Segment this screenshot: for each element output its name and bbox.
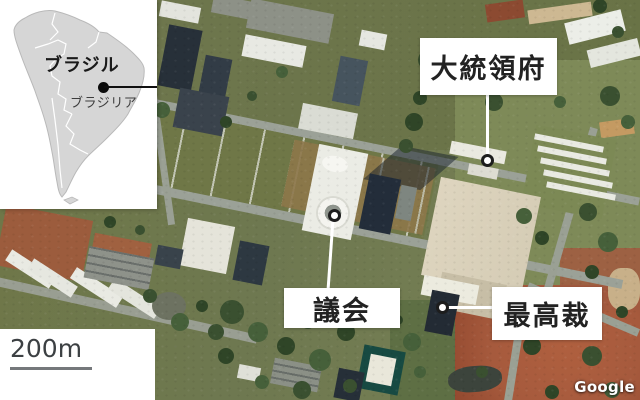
itamaraty-courtyard: [366, 354, 397, 386]
building-shape: [237, 364, 261, 382]
building-shape: [333, 368, 364, 400]
tierra-del-fuego: [64, 197, 78, 204]
building-shape: [232, 241, 269, 286]
presidential-office-marker-icon: [481, 154, 494, 167]
news-map-graphic: 大統領府 議会 最高裁 ブラジル ブラジリア 200m Google: [0, 0, 640, 400]
label-presidential-office-text: 大統領府: [431, 47, 547, 86]
supreme-court-marker-icon: [436, 301, 449, 314]
round-building: [152, 292, 186, 320]
google-attribution: Google: [574, 378, 635, 396]
parliament-marker-icon: [328, 209, 341, 222]
inset-leader-line: [104, 86, 157, 88]
leader-line-supreme-court: [447, 306, 493, 309]
building-shape: [179, 218, 235, 274]
label-parliament: 議会: [284, 288, 400, 328]
leader-line-presidential-office: [486, 95, 489, 157]
city-label: ブラジリア: [70, 92, 137, 111]
scale-bar: 200m: [0, 329, 155, 400]
label-supreme-court-text: 最高裁: [504, 294, 591, 333]
label-supreme-court: 最高裁: [492, 287, 602, 340]
scale-bar-label: 200m: [10, 334, 82, 363]
country-label: ブラジル: [44, 51, 120, 77]
locator-inset-map: ブラジル ブラジリア: [0, 0, 157, 209]
scale-bar-line: [10, 367, 92, 370]
label-parliament-text: 議会: [313, 289, 371, 328]
building-shape: [154, 245, 183, 270]
parking-lot: [270, 358, 322, 393]
label-presidential-office: 大統領府: [420, 38, 557, 95]
